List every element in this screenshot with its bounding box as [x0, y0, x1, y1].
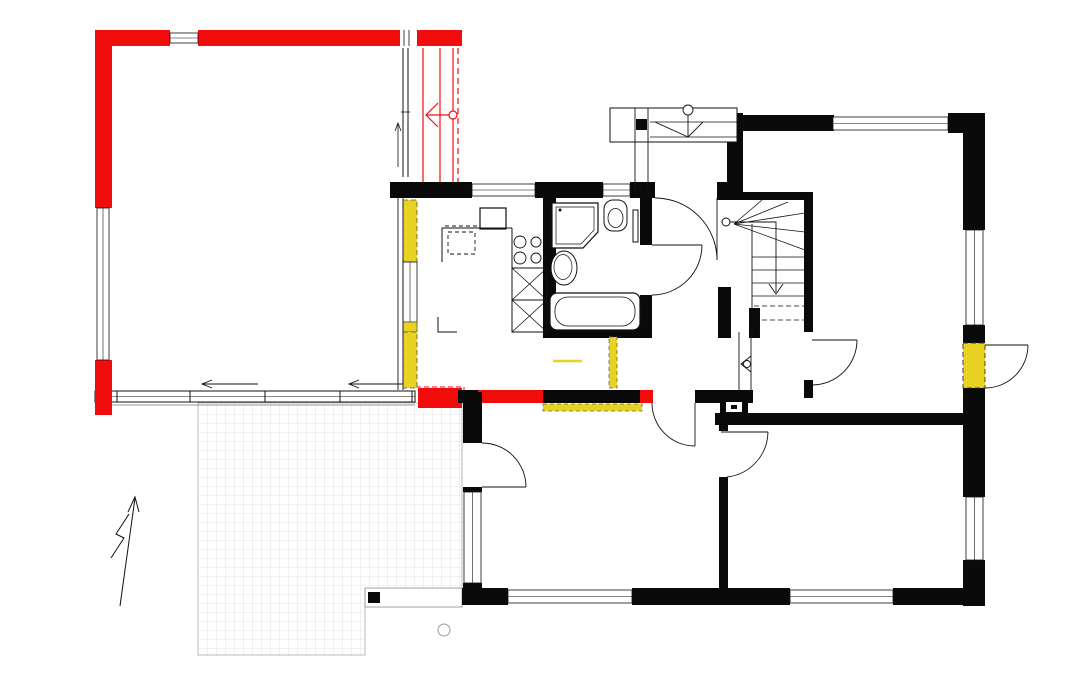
kitchen-sink-unit [480, 208, 506, 229]
wall-east [963, 325, 985, 343]
wall-south [632, 588, 790, 605]
wall-between-rooms [719, 425, 728, 431]
shower-drain [559, 209, 562, 212]
wall-top-right [743, 115, 834, 131]
cooktop-burner [531, 237, 541, 247]
kitchen-counter [442, 228, 512, 262]
door-right-room-arc [812, 340, 857, 385]
wall-between-rooms [719, 477, 728, 588]
wall-east [963, 388, 985, 497]
new-wall-seg-a [478, 390, 543, 403]
porch-post [636, 119, 647, 130]
new-opening-east [963, 343, 985, 388]
cooktop-burner [531, 253, 541, 263]
toilet-body [604, 200, 627, 231]
terrace-step-post [368, 592, 380, 603]
wall-south [893, 588, 985, 605]
kitchen-corner-mark [438, 317, 457, 332]
wall-stair-right [804, 200, 813, 332]
terrace-tiles [198, 403, 462, 655]
wall-corner-ne [948, 113, 985, 133]
new-wall-seg-b [640, 390, 653, 403]
wall-west-room [463, 583, 482, 603]
basin-outer [551, 251, 577, 285]
wall-bath-right [640, 295, 652, 338]
porch-pipe [683, 105, 693, 115]
floorplan-svg [0, 0, 1075, 687]
door-connect-arc [727, 432, 768, 477]
ground-marker-circle [438, 624, 450, 636]
bathtub-outer [550, 293, 640, 330]
wall [390, 182, 472, 198]
north-arrow-shaft [120, 498, 135, 606]
new-wall-pier [418, 388, 462, 408]
cooktop-burner [514, 252, 526, 264]
door-terrace-arc [482, 443, 526, 487]
door-front-arc [655, 198, 717, 260]
north-arrow-mark [111, 514, 129, 558]
floor-plan-page [0, 0, 1075, 687]
wall-bath-right [640, 185, 652, 245]
landing-pivot [744, 361, 751, 368]
door-bath-arc [652, 245, 702, 295]
wall [804, 380, 813, 398]
stair-winder [734, 202, 788, 224]
cooktop-burner [514, 236, 526, 248]
chimney-flue [731, 405, 737, 409]
wall-west-room [463, 487, 482, 492]
wall-hall-stub [718, 287, 731, 338]
wall-west-room [463, 392, 482, 443]
demo-wall-c [403, 332, 417, 388]
demo-wall-mid [609, 337, 617, 388]
demo-strip-hall [543, 404, 642, 411]
door-east-exit-arc [985, 345, 1028, 388]
demo-wall-a [403, 200, 417, 262]
stair-pivot [722, 218, 730, 226]
wall-gap-track [400, 30, 417, 46]
wall-east [963, 133, 985, 230]
wall-stair-top [717, 192, 813, 200]
wall [543, 390, 640, 403]
wall [535, 182, 603, 198]
door-room-south-arc [652, 403, 695, 446]
new-door-pivot [449, 111, 457, 119]
appliance-planned [448, 232, 475, 254]
demo-wall-b [403, 322, 417, 332]
wall-mid-horizontal [715, 413, 963, 425]
radiator [633, 210, 638, 242]
